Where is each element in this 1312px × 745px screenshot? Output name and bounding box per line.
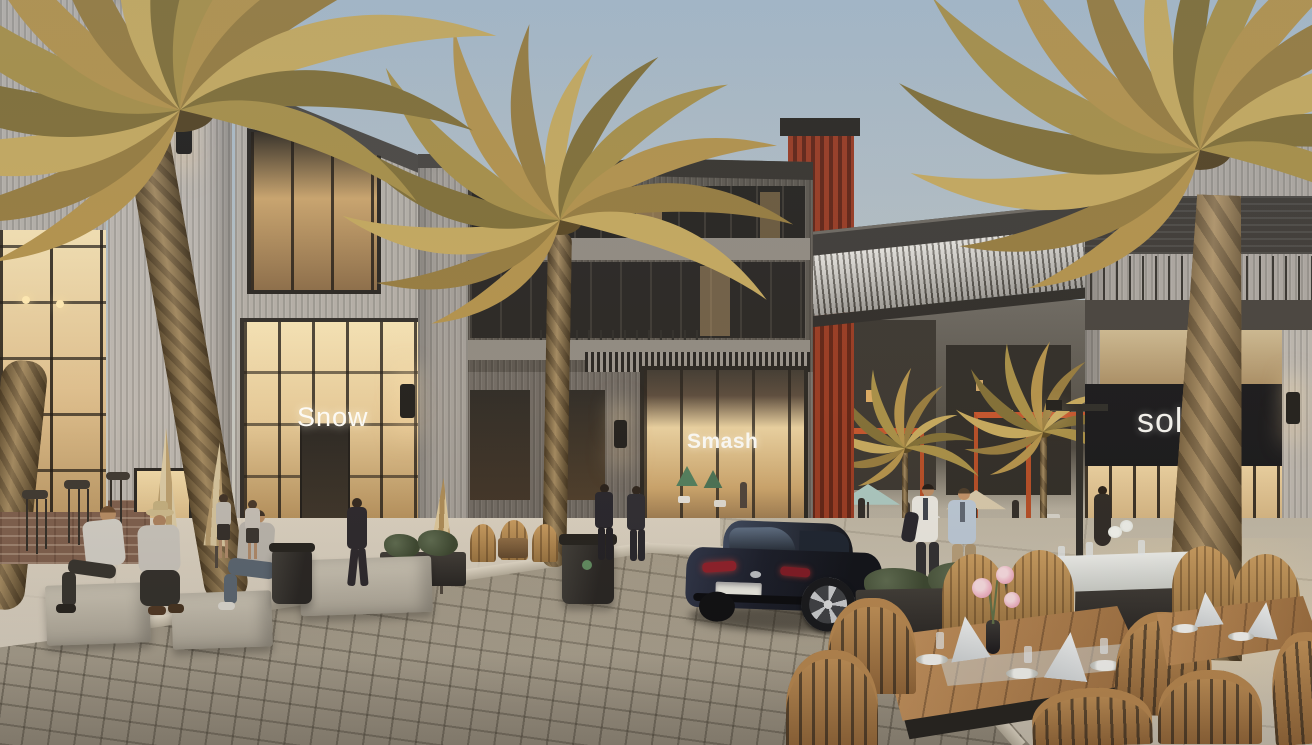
standing-woman-skirt	[246, 528, 259, 543]
street-lamp-head	[1046, 400, 1062, 410]
green-cafe-umbrella	[700, 470, 726, 488]
standing-woman-legs	[254, 543, 257, 559]
recycle-logo	[582, 560, 592, 570]
person-seated-man-shin	[62, 572, 76, 606]
centerpiece-flowers	[1120, 520, 1133, 532]
shopper-silhouette	[740, 482, 747, 508]
businessman-tie	[960, 502, 965, 522]
wicker-chair	[470, 524, 496, 562]
trash-bin-lid	[269, 543, 315, 552]
cafe-table-tiny	[714, 500, 726, 507]
mazda-winged-m-badge	[750, 571, 761, 578]
talking-man-leg	[630, 529, 637, 561]
standing-woman-legs	[219, 540, 222, 558]
standing-woman-legs	[225, 540, 228, 558]
talking-man-leg	[606, 527, 613, 560]
talking-man-suit	[595, 492, 613, 528]
pink-flower	[996, 566, 1014, 584]
wall-lamp	[400, 384, 415, 418]
pink-flower	[1004, 592, 1020, 608]
pink-flower	[972, 578, 992, 598]
table-glassware	[1086, 542, 1093, 557]
talking-man-leg	[598, 527, 605, 560]
concrete-bench	[171, 590, 273, 649]
person-hat-man-shoe	[148, 606, 166, 615]
place-plate	[1006, 668, 1038, 679]
tower-cap	[780, 118, 860, 136]
standing-woman-skirt	[217, 524, 230, 540]
flower-vase	[986, 620, 1000, 654]
place-plate	[1172, 624, 1198, 633]
left-palm-crown	[0, 0, 490, 310]
businessman-head	[922, 484, 934, 496]
concrete-bench	[45, 582, 151, 646]
table-glassware	[1138, 540, 1145, 555]
wood-spindle-chair	[786, 650, 878, 745]
bar-stool	[106, 472, 130, 480]
person-hat-man-torso	[137, 524, 181, 573]
green-cafe-umbrella	[672, 466, 702, 486]
cafe-table-tiny	[678, 496, 690, 503]
trash-bin	[272, 548, 312, 604]
bench-group	[0, 480, 460, 660]
plaza-rendering: Smash Snow sola	[0, 0, 1312, 745]
place-plate	[916, 654, 948, 665]
talking-men	[592, 482, 662, 568]
straw-hat-crown	[153, 501, 168, 510]
walking-man-suit	[347, 507, 367, 549]
water-glass	[936, 632, 944, 649]
water-glass	[1100, 638, 1108, 654]
businessman-tie	[923, 498, 928, 520]
right-palm-crown	[920, 0, 1312, 340]
outdoor-dining-area	[820, 520, 1312, 745]
cafe-table	[498, 538, 528, 558]
standing-woman-top	[245, 508, 260, 530]
wall-lamp	[1286, 392, 1300, 424]
talking-man-leg	[638, 529, 645, 561]
water-glass	[1024, 646, 1032, 663]
person-hat-man-legs	[140, 570, 180, 606]
place-plate	[1228, 632, 1254, 641]
wood-spindle-chair	[1158, 670, 1262, 744]
smash-sign-text: Smash	[687, 430, 758, 454]
person-hat-man-shoe	[168, 604, 184, 613]
businessman-head	[958, 488, 970, 500]
wicker-chair	[532, 524, 558, 562]
standing-woman-legs	[248, 543, 251, 559]
standing-woman-top	[216, 502, 231, 526]
talking-man-suit	[627, 494, 645, 530]
person-seated-man-shoe	[56, 604, 76, 613]
person-seated-woman-shin	[224, 574, 237, 604]
person-seated-woman-shoe	[218, 602, 235, 610]
